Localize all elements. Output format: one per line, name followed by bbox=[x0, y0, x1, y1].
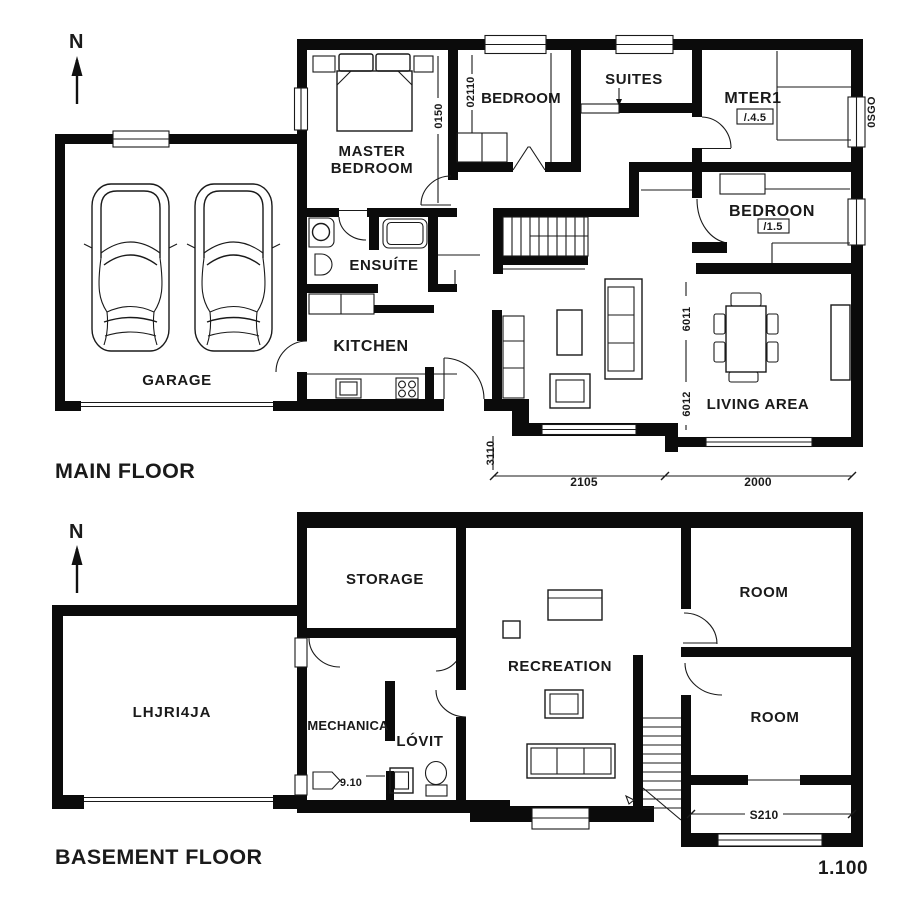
svg-text:02110: 02110 bbox=[465, 77, 477, 108]
svg-text:1.100: 1.100 bbox=[818, 858, 868, 879]
svg-text:3110: 3110 bbox=[485, 441, 497, 466]
svg-text:MAIN FLOOR: MAIN FLOOR bbox=[55, 459, 195, 483]
svg-text:N: N bbox=[69, 31, 83, 53]
svg-text:BASEMENT FLOOR: BASEMENT FLOOR bbox=[55, 845, 263, 869]
svg-text:N: N bbox=[69, 521, 83, 543]
svg-text:MTER1: MTER1 bbox=[724, 90, 781, 107]
svg-text:BEDROON: BEDROON bbox=[729, 203, 815, 220]
svg-text:MASTER: MASTER bbox=[339, 143, 406, 160]
svg-text:6011: 6011 bbox=[681, 307, 693, 332]
svg-text:LÓVIT: LÓVIT bbox=[396, 732, 443, 750]
svg-text:KITCHEN: KITCHEN bbox=[333, 338, 408, 355]
svg-text:/.4.5: /.4.5 bbox=[744, 112, 766, 124]
svg-text:0150: 0150 bbox=[433, 103, 445, 128]
svg-text:ROOM: ROOM bbox=[739, 584, 788, 601]
svg-text:ROOM: ROOM bbox=[750, 709, 799, 726]
svg-text:BEDROOM: BEDROOM bbox=[481, 90, 561, 107]
svg-text:LHJRI4JA: LHJRI4JA bbox=[133, 704, 212, 721]
svg-text:GARAGE: GARAGE bbox=[142, 372, 211, 389]
svg-text:/1.5: /1.5 bbox=[763, 221, 782, 233]
svg-text:9.10: 9.10 bbox=[340, 777, 362, 789]
svg-text:2000: 2000 bbox=[744, 475, 772, 489]
svg-text:ENSUÍTE: ENSUÍTE bbox=[349, 257, 418, 274]
svg-text:0SGO: 0SGO bbox=[866, 96, 878, 128]
svg-text:STORAGE: STORAGE bbox=[346, 571, 424, 588]
svg-text:SUITES: SUITES bbox=[605, 71, 663, 88]
svg-text:BEDROOM: BEDROOM bbox=[331, 160, 414, 177]
svg-text:RECREATION: RECREATION bbox=[508, 658, 612, 675]
svg-text:2105: 2105 bbox=[570, 475, 598, 489]
svg-text:S210: S210 bbox=[750, 808, 779, 822]
svg-text:LIVING AREA: LIVING AREA bbox=[707, 396, 810, 413]
svg-text:6012: 6012 bbox=[681, 391, 693, 416]
svg-text:MECHANICA: MECHANICA bbox=[307, 718, 389, 733]
